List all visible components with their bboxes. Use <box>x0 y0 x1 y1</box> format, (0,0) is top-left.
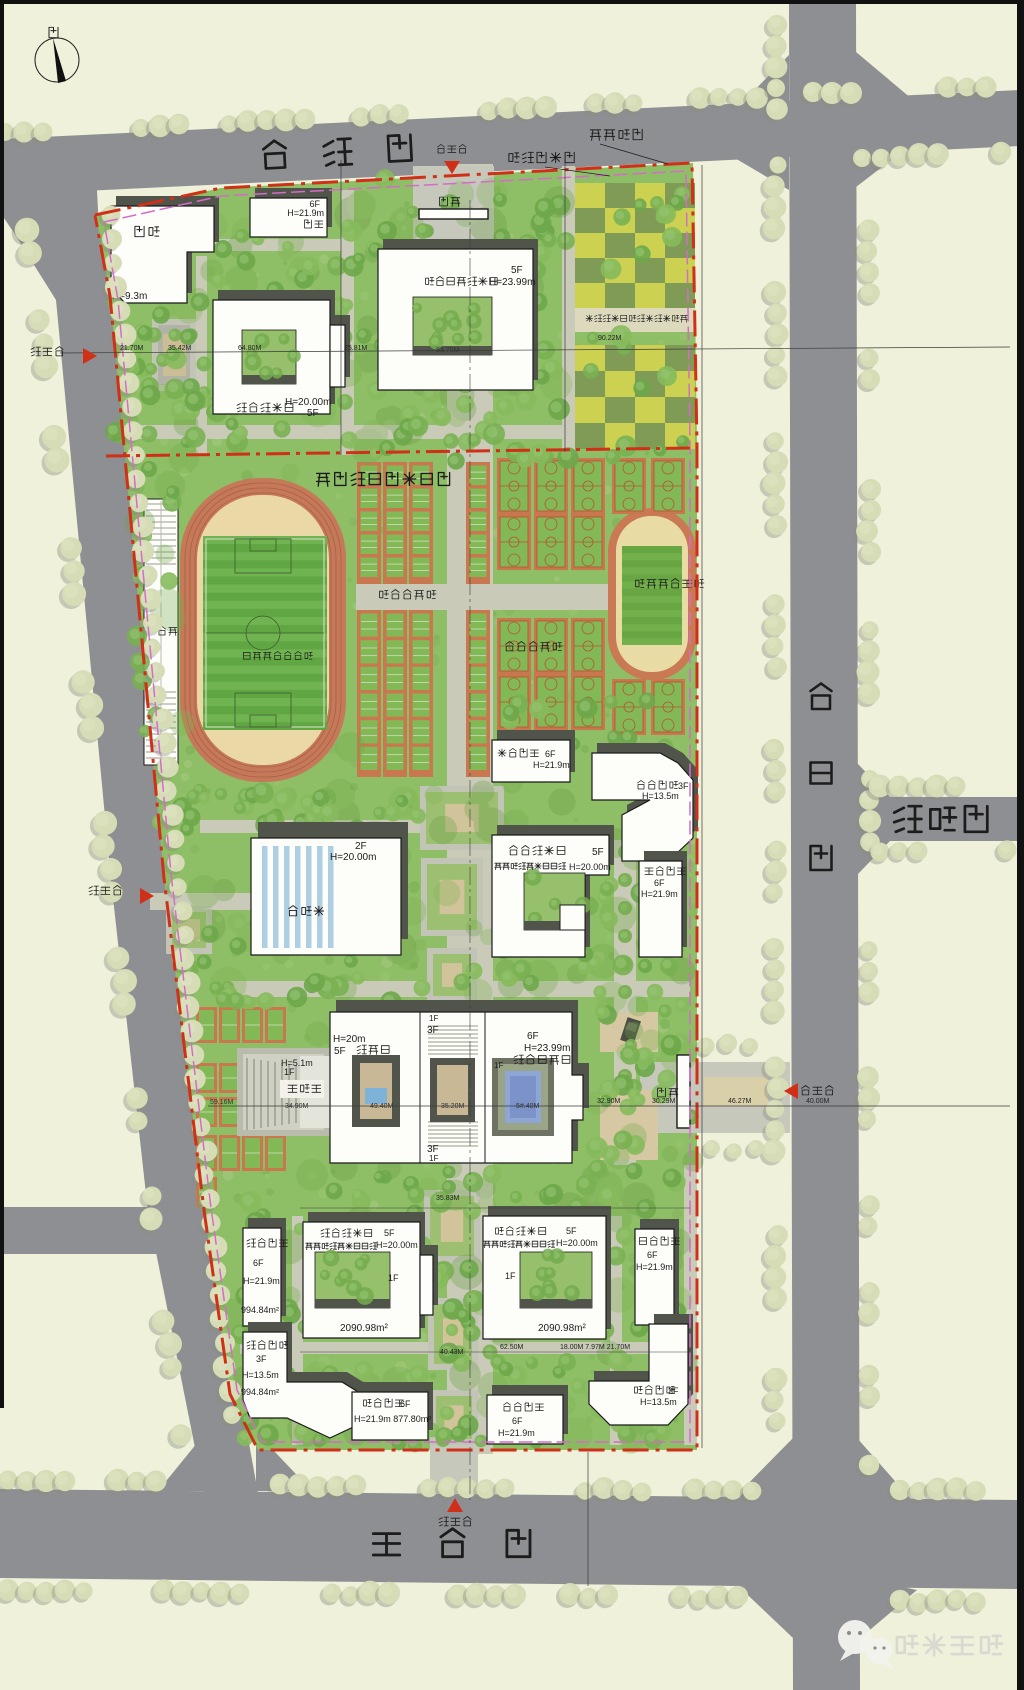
svg-text:6F: 6F <box>512 1416 523 1426</box>
svg-text:H=20.00m: H=20.00m <box>569 862 611 872</box>
svg-text:6F: 6F <box>400 1399 411 1409</box>
svg-text:21.70M: 21.70M <box>120 345 144 352</box>
svg-text:3F: 3F <box>678 781 689 791</box>
svg-text:H=21.9m: H=21.9m <box>287 208 324 218</box>
svg-text:5#.40M: 5#.40M <box>516 1103 540 1110</box>
svg-text:1F: 1F <box>494 1061 503 1070</box>
svg-text:30.29M: 30.29M <box>652 1098 676 1105</box>
svg-text:6F: 6F <box>527 1031 539 1042</box>
svg-text:5F: 5F <box>511 265 523 276</box>
svg-text:2F: 2F <box>355 841 367 852</box>
svg-text:46.27M: 46.27M <box>728 1098 752 1105</box>
svg-text:994.84m²: 994.84m² <box>241 1387 279 1397</box>
svg-text:H=21.9m: H=21.9m <box>243 1276 280 1286</box>
svg-text:1F: 1F <box>505 1271 516 1281</box>
svg-text:5F: 5F <box>334 1046 346 1057</box>
svg-text:6F: 6F <box>654 878 665 888</box>
svg-text:6F: 6F <box>545 749 556 759</box>
svg-text:3F: 3F <box>668 1386 679 1396</box>
svg-text:6F: 6F <box>647 1250 658 1260</box>
svg-text:H=20.00m: H=20.00m <box>330 852 376 863</box>
svg-text:59.16M: 59.16M <box>210 1099 234 1106</box>
svg-text:H=13.5m: H=13.5m <box>242 1370 279 1380</box>
svg-text:2090.98m²: 2090.98m² <box>538 1323 586 1334</box>
svg-text:H=20.00m: H=20.00m <box>376 1240 418 1250</box>
svg-text:90.22M: 90.22M <box>598 335 622 342</box>
svg-text:3F: 3F <box>427 1025 439 1036</box>
svg-text:H=21.9m 877.80m²: H=21.9m 877.80m² <box>354 1414 431 1424</box>
svg-text:35.83M: 35.83M <box>436 1195 460 1202</box>
svg-text:1F: 1F <box>388 1273 399 1283</box>
svg-text:H=23.99m: H=23.99m <box>524 1043 570 1054</box>
svg-text:994.84m²: 994.84m² <box>241 1305 279 1315</box>
svg-text:H=20.00m: H=20.00m <box>556 1238 598 1248</box>
svg-text:H=21.9m: H=21.9m <box>498 1428 535 1438</box>
svg-text:5F: 5F <box>384 1228 395 1238</box>
svg-text:3F: 3F <box>256 1354 267 1364</box>
svg-text:64.80M: 64.80M <box>238 345 262 352</box>
svg-text:25.81M: 25.81M <box>344 345 368 352</box>
svg-text:5F: 5F <box>566 1226 577 1236</box>
svg-text:H=20.00m: H=20.00m <box>285 397 331 408</box>
svg-text:1F: 1F <box>284 1067 295 1077</box>
svg-text:5F: 5F <box>592 847 604 858</box>
svg-text:1F: 1F <box>429 1014 438 1023</box>
svg-text:H=13.5m: H=13.5m <box>640 1397 677 1407</box>
svg-text:49.40M: 49.40M <box>370 1103 394 1110</box>
svg-text:H=21.9m: H=21.9m <box>641 889 678 899</box>
svg-text:34.90M: 34.90M <box>285 1103 309 1110</box>
svg-text:40.43M: 40.43M <box>440 1349 464 1356</box>
svg-text:32.90M: 32.90M <box>597 1098 621 1105</box>
svg-text:35.42M: 35.42M <box>168 345 192 352</box>
svg-text:H=21.9m: H=21.9m <box>533 760 570 770</box>
svg-text:H=13.5m: H=13.5m <box>642 791 679 801</box>
svg-text:6F: 6F <box>253 1258 264 1268</box>
svg-text:H=20m: H=20m <box>333 1034 366 1045</box>
svg-text:2090.98m²: 2090.98m² <box>340 1323 388 1334</box>
svg-text:40.00M: 40.00M <box>806 1098 830 1105</box>
svg-text:18.00M 7.97M 21.70M: 18.00M 7.97M 21.70M <box>560 1344 630 1351</box>
svg-text:H=21.9m: H=21.9m <box>636 1262 673 1272</box>
svg-text:H=23.99m: H=23.99m <box>489 277 535 288</box>
svg-text:5F: 5F <box>307 408 319 419</box>
svg-text:1F: 1F <box>429 1154 438 1163</box>
svg-text:35.20M: 35.20M <box>441 1103 465 1110</box>
svg-text:62.50M: 62.50M <box>500 1344 524 1351</box>
